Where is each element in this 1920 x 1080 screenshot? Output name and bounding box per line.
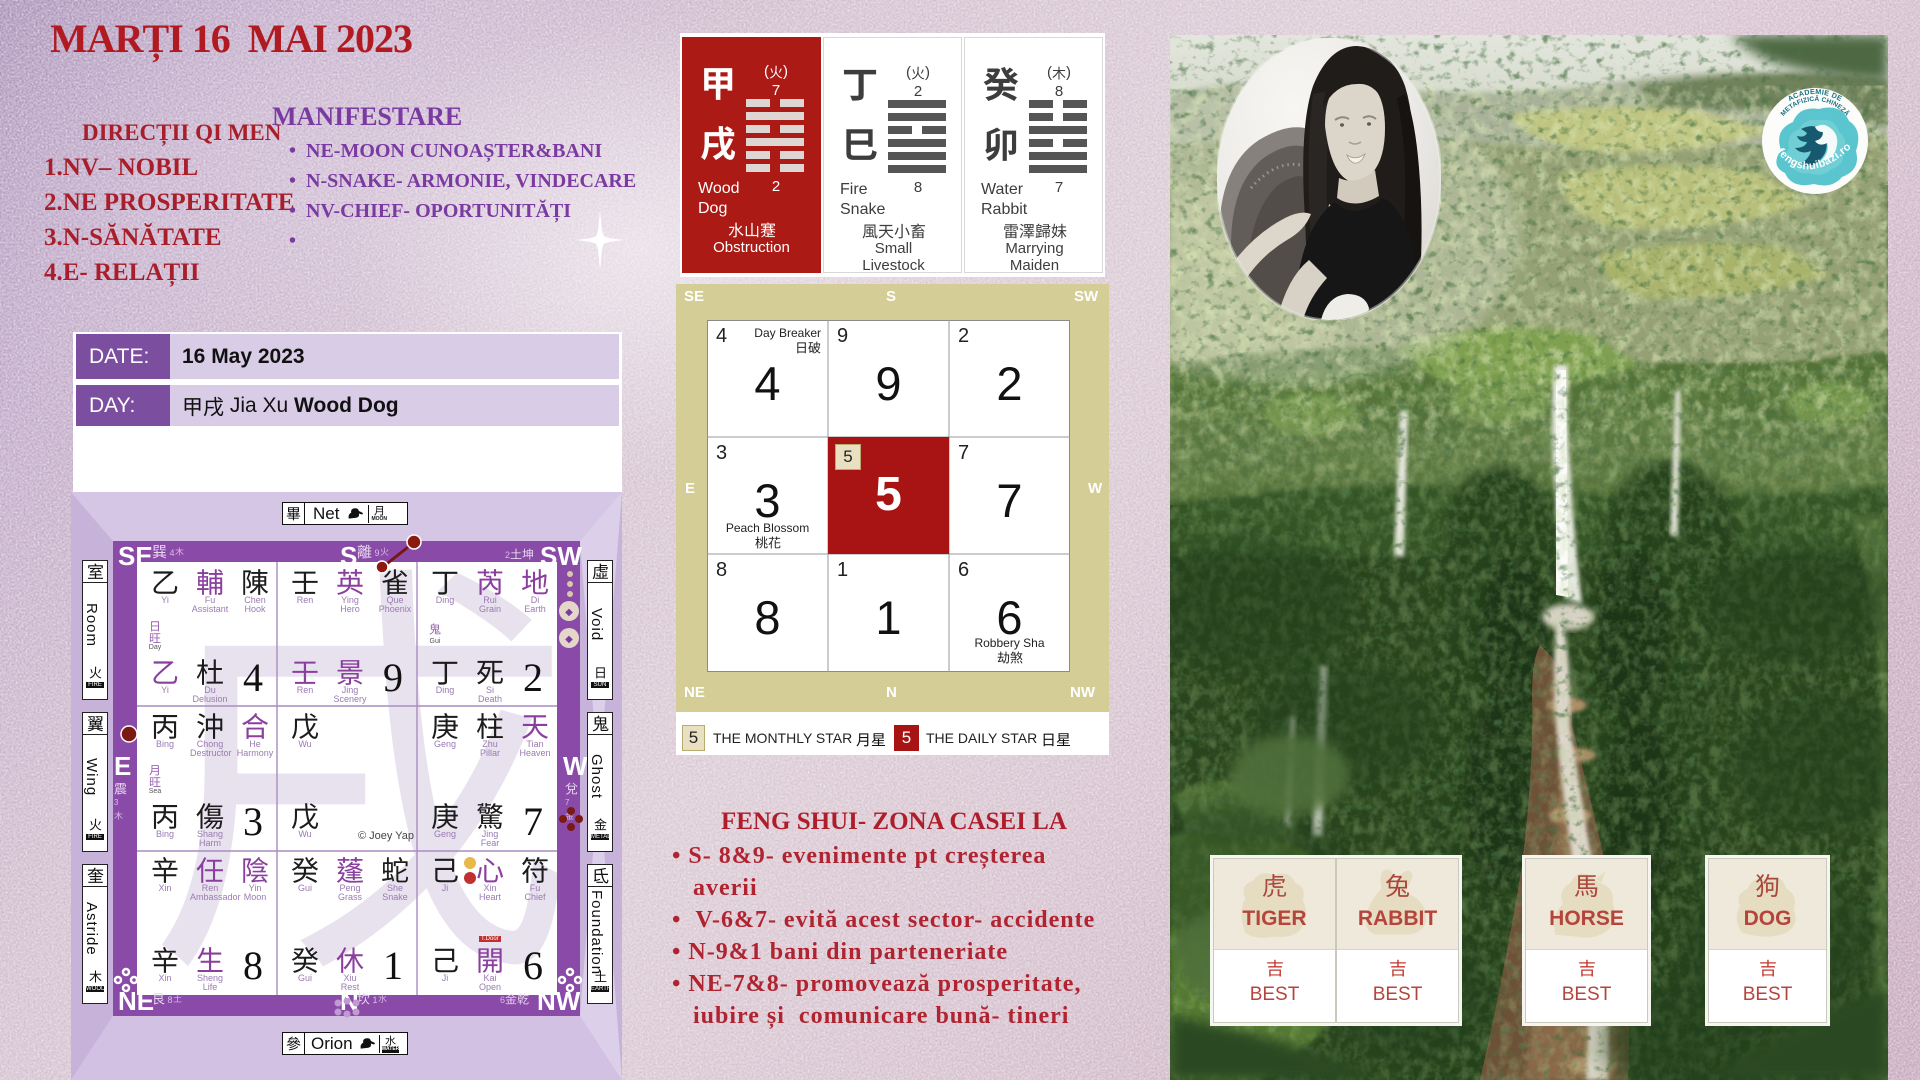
svg-text:◆: ◆ [565, 607, 573, 618]
svg-text:◆: ◆ [565, 634, 573, 645]
